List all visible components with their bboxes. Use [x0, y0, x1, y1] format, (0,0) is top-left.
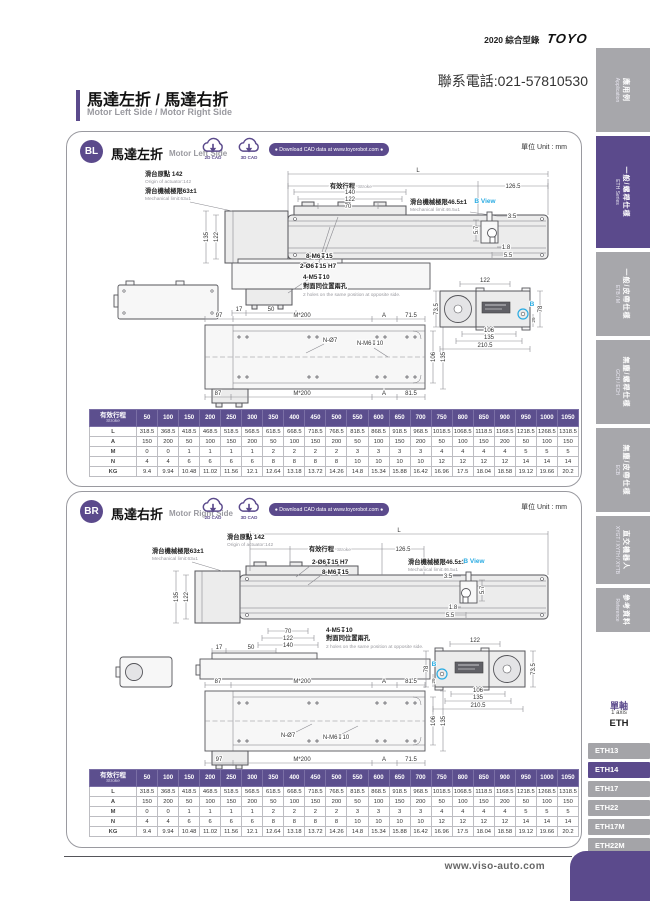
cad-download-banner[interactable]: ● Download CAD data at www.toyorobot.com…: [269, 503, 389, 516]
dimension-value-cell: 868.5: [368, 787, 389, 797]
dimension-value-cell: 6: [221, 457, 242, 467]
dimension-value-cell: 50: [263, 797, 284, 807]
sidebar-tab-etb-m[interactable]: 一般/皮帶仕樣ETB / M: [596, 252, 650, 336]
dimension-value-cell: 10: [389, 817, 410, 827]
dimension-value-cell: 150: [221, 437, 242, 447]
dimension-value-cell: 100: [536, 437, 557, 447]
dim-label: M*200: [293, 757, 311, 763]
sidebar-tab-xy-robot[interactable]: 直交機器人XYGT / XYTH / XYTB: [596, 516, 650, 584]
page-corner-decoration: [570, 851, 650, 901]
b-view-label: B View: [474, 198, 496, 205]
panel-motor-right: BR 馬達右折 Motor Right Side 2D CAD 3D CAD ●…: [66, 491, 582, 848]
dimension-value-cell: 8: [263, 457, 284, 467]
dimension-value-cell: 3: [410, 807, 431, 817]
dim-label: 210.5: [470, 703, 486, 709]
dim-label: 210.5: [477, 343, 493, 349]
dimension-value-cell: 4: [158, 457, 179, 467]
dimension-value-cell: 2: [305, 807, 326, 817]
tab-label-en: XYGT / XYTH / XYTB: [615, 526, 621, 574]
dim-label: 3.5: [508, 214, 517, 220]
dimension-value-cell: 18.58: [494, 467, 515, 477]
dim-label: 17: [236, 307, 243, 313]
dim-label: 106: [484, 328, 495, 334]
stroke-header-cell: 50: [137, 770, 158, 787]
dimension-value-cell: 518.5: [221, 427, 242, 437]
footer-divider: [64, 856, 572, 857]
dimension-value-cell: 9.94: [158, 827, 179, 837]
dimension-value-cell: 8: [263, 817, 284, 827]
dimension-value-cell: 318.5: [137, 787, 158, 797]
dimension-value-cell: 11.56: [221, 827, 242, 837]
dimension-value-cell: 10.48: [179, 827, 200, 837]
dimension-value-cell: 6: [200, 457, 221, 467]
unit-label: 單位 Unit : mm: [521, 502, 567, 512]
dim-label: 78: [424, 665, 430, 672]
dimension-value-cell: 1268.5: [536, 787, 557, 797]
title-accent-bar: [76, 90, 80, 121]
dimension-value-cell: 100: [284, 437, 305, 447]
dimension-value-cell: 13.72: [305, 467, 326, 477]
dim-label: 滑台機械極限63±1: [152, 546, 204, 555]
dimension-value-cell: 4: [494, 807, 515, 817]
dim-label: M*200: [293, 313, 311, 319]
tab-label-en: GCH / ECH: [615, 369, 621, 395]
dimension-value-cell: 2: [284, 447, 305, 457]
dimension-value-cell: 14: [515, 457, 536, 467]
sidebar-tab-reference[interactable]: 參考資料Reference: [596, 588, 650, 632]
row-label-cell: A: [90, 797, 137, 807]
dimension-value-cell: 14: [536, 817, 557, 827]
dimension-value-cell: 200: [242, 797, 263, 807]
dim-label: 5.5: [504, 253, 513, 259]
dimension-value-cell: 6: [221, 817, 242, 827]
dim-label: 70: [285, 629, 292, 635]
tab-label-zh: 無塵/螺桿仕樣: [622, 357, 632, 408]
dimension-value-cell: 5: [557, 807, 578, 817]
dimension-value-cell: 1: [221, 447, 242, 457]
stroke-header-cell: 800: [452, 410, 473, 427]
dim-label: M*200: [293, 679, 311, 685]
dimension-value-cell: 768.5: [326, 787, 347, 797]
dimension-value-cell: 9.94: [158, 467, 179, 477]
dimension-value-cell: 10: [410, 817, 431, 827]
dimension-value-cell: 17.5: [452, 467, 473, 477]
dimension-value-cell: 668.5: [284, 787, 305, 797]
dimension-value-cell: 4: [494, 447, 515, 457]
stroke-header-cell: 750: [431, 770, 452, 787]
dimension-value-cell: 14.26: [326, 827, 347, 837]
dimension-value-cell: 200: [326, 437, 347, 447]
dimension-value-cell: 14.8: [347, 467, 368, 477]
dimension-value-cell: 918.5: [389, 787, 410, 797]
dimension-value-cell: 200: [410, 797, 431, 807]
dim-label: 2 holes on the same position at opposite…: [303, 292, 400, 298]
tab-label-zh: 應用例: [622, 78, 632, 102]
dim-label: 81.5: [405, 679, 417, 685]
stroke-header-cell: 50: [137, 410, 158, 427]
cad-2d-label: 2D CAD: [205, 155, 222, 160]
dimension-value-cell: 150: [137, 437, 158, 447]
row-label-cell: A: [90, 437, 137, 447]
dimension-value-cell: 3: [347, 807, 368, 817]
dim-label: 2-Ø6↧15 H7: [300, 263, 337, 270]
dimension-value-cell: 150: [557, 437, 578, 447]
panel-motor-left: BL 馬達左折 Motor Left Side 2D CAD 3D CAD ● …: [66, 131, 582, 487]
dimension-value-cell: 1168.5: [494, 427, 515, 437]
dim-label: N-Ø7: [281, 733, 296, 739]
stroke-header-cell: 450: [305, 410, 326, 427]
dim-label: N-M6↧10: [357, 340, 384, 347]
dimension-value-cell: 4: [473, 447, 494, 457]
dimension-value-cell: 1118.5: [473, 787, 494, 797]
dimension-value-cell: 15.34: [368, 467, 389, 477]
stroke-dimension-table: 有效行程Stroke501001502002503003504004505005…: [89, 769, 579, 837]
dimension-value-cell: 100: [452, 437, 473, 447]
dimension-value-cell: 15.88: [389, 467, 410, 477]
dimension-value-cell: 6: [242, 457, 263, 467]
b-mark-label: B: [530, 301, 535, 308]
tab-label-en: ETB / M: [615, 285, 621, 303]
dim-label: Mechanical limit:46.5±1: [410, 207, 460, 213]
dimension-value-cell: 1318.5: [557, 427, 578, 437]
dimension-value-cell: 150: [305, 437, 326, 447]
dimension-value-cell: 718.5: [305, 427, 326, 437]
stroke-header-cell: 550: [347, 770, 368, 787]
sidebar-tab-gch-ech[interactable]: 無塵/螺桿仕樣GCH / ECH: [596, 340, 650, 424]
dimension-value-cell: 150: [557, 797, 578, 807]
dimension-value-cell: 14: [515, 817, 536, 827]
dimension-value-cell: 2: [284, 807, 305, 817]
dimension-value-cell: 8: [305, 817, 326, 827]
br-bottom-view: 87 M*200 A 81.5 N-Ø7 N-M6↧10 106 135 97: [205, 679, 447, 769]
dim-label: 106: [473, 688, 484, 694]
row-label-cell: L: [90, 427, 137, 437]
cad-3d-download[interactable]: 3D CAD: [233, 137, 265, 160]
dimension-value-cell: 4: [452, 447, 473, 457]
dim-label: 8-M6↧15: [322, 569, 349, 576]
cad-2d-download[interactable]: 2D CAD: [197, 497, 229, 520]
dimension-value-cell: 10: [347, 457, 368, 467]
dim-label: 122: [470, 638, 481, 644]
tab-label-zh: 一般/皮帶仕樣: [622, 269, 632, 320]
dim-label: 29: [531, 317, 537, 323]
stroke-header-cell: 950: [515, 410, 536, 427]
dim-label: A: [382, 391, 386, 397]
dim-label: 71.5: [405, 313, 417, 319]
page-subtitle: Motor Left Side / Motor Right Side: [87, 107, 232, 117]
dimension-value-cell: 768.5: [326, 427, 347, 437]
catalog-year-label: 2020 綜合型錄: [484, 35, 539, 45]
dimension-value-cell: 12: [494, 457, 515, 467]
dimension-value-cell: 10: [347, 817, 368, 827]
dimension-value-cell: 16.96: [431, 467, 452, 477]
dimension-value-cell: 11.56: [221, 467, 242, 477]
dim-label: 滑台原點 142: [145, 169, 183, 178]
dimension-value-cell: 13.72: [305, 827, 326, 837]
dim-label: 2 holes on the same position at opposite…: [326, 644, 423, 650]
dimension-value-cell: 1: [179, 447, 200, 457]
row-label-cell: M: [90, 447, 137, 457]
dimension-value-cell: 5: [557, 447, 578, 457]
tab-label-zh: 直交機器人: [622, 530, 632, 570]
stroke-header-cell: 150: [179, 770, 200, 787]
catalog-page: 2020 綜合型錄TOYO 聯系電話:021-57810530 馬達左折 / 馬…: [0, 0, 650, 901]
dimension-value-cell: 2: [326, 807, 347, 817]
dimension-value-cell: 200: [242, 437, 263, 447]
dimension-value-cell: 0: [137, 447, 158, 457]
dimension-value-cell: 1: [200, 807, 221, 817]
br-top-view: [195, 562, 548, 623]
dimension-value-cell: 568.5: [242, 427, 263, 437]
dimension-value-cell: 8: [305, 457, 326, 467]
dimension-value-cell: 818.5: [347, 427, 368, 437]
dimension-value-cell: 16.42: [410, 827, 431, 837]
row-label-cell: L: [90, 787, 137, 797]
dimension-value-cell: 1268.5: [536, 427, 557, 437]
dimension-value-cell: 18.04: [473, 827, 494, 837]
dim-label: L: [416, 168, 420, 174]
dim-label: 有效行程: [330, 181, 356, 190]
dimension-value-cell: 468.5: [200, 787, 221, 797]
dimension-value-cell: 8: [326, 457, 347, 467]
dimension-value-cell: 15.88: [389, 827, 410, 837]
dimension-value-cell: 518.5: [221, 787, 242, 797]
sidebar-tab-eth-series[interactable]: 一般/螺桿仕樣ETH Series: [596, 136, 650, 248]
dimension-value-cell: 1: [242, 807, 263, 817]
dimension-value-cell: 14: [557, 817, 578, 827]
dimension-value-cell: 19.66: [536, 467, 557, 477]
dimension-value-cell: 16.96: [431, 827, 452, 837]
dimension-value-cell: 200: [410, 437, 431, 447]
dim-label: A: [382, 679, 386, 685]
dimension-table: 有效行程Stroke501001502002503003504004505005…: [89, 769, 579, 837]
dim-label: 97: [216, 313, 223, 319]
dimension-value-cell: 50: [515, 797, 536, 807]
stroke-header-corner: 有效行程Stroke: [90, 770, 137, 787]
cad-3d-download[interactable]: 3D CAD: [233, 497, 265, 520]
dim-label: 71.5: [405, 757, 417, 763]
dimension-value-cell: 1318.5: [557, 787, 578, 797]
dimension-value-cell: 19.66: [536, 827, 557, 837]
dim-label: 122: [214, 231, 220, 242]
dim-label: 對面同位置兩孔: [326, 633, 371, 642]
dimension-value-cell: 20.2: [557, 827, 578, 837]
dimension-value-cell: 18.04: [473, 467, 494, 477]
dimension-value-cell: 0: [158, 807, 179, 817]
dimension-value-cell: 150: [389, 797, 410, 807]
dimension-value-cell: 968.5: [410, 787, 431, 797]
dimension-value-cell: 12: [431, 457, 452, 467]
dimension-value-cell: 100: [200, 437, 221, 447]
dim-label: 滑台機械極限46.5±1: [408, 557, 465, 566]
dim-label: 135: [484, 335, 495, 341]
dim-label: 135: [441, 351, 447, 362]
stroke-header-cell: 900: [494, 770, 515, 787]
dimension-value-cell: 150: [137, 797, 158, 807]
dim-label: Mechanical limit:63±1: [152, 556, 198, 562]
table-row: N44666688881010101012121212141414: [90, 457, 579, 467]
dim-label: 122: [184, 591, 190, 602]
stroke-header-cell: 250: [221, 770, 242, 787]
dimension-value-cell: 868.5: [368, 427, 389, 437]
tab-label-en: ETH Series: [615, 179, 621, 205]
dimension-value-cell: 3: [368, 447, 389, 457]
cloud-download-icon: [199, 497, 227, 517]
dimension-value-cell: 50: [347, 797, 368, 807]
sidebar-tab-application[interactable]: 應用例Application: [596, 48, 650, 132]
stroke-header-cell: 850: [473, 770, 494, 787]
cad-3d-label: 3D CAD: [241, 155, 258, 160]
dimension-value-cell: 9.4: [137, 827, 158, 837]
stroke-header-cell: 700: [410, 770, 431, 787]
dimension-value-cell: 3: [347, 447, 368, 457]
dimension-value-cell: 15.34: [368, 827, 389, 837]
cad-download-banner[interactable]: ● Download CAD data at www.toyorobot.com…: [269, 143, 389, 156]
dimension-value-cell: 11.02: [200, 467, 221, 477]
stroke-header-cell: 400: [284, 410, 305, 427]
dimension-value-cell: 12.1: [242, 827, 263, 837]
dimension-value-cell: 16.42: [410, 467, 431, 477]
dim-label: 1.8: [502, 245, 511, 251]
dim-label: 1.8: [449, 605, 458, 611]
dimension-value-cell: 4: [452, 807, 473, 817]
dim-label: 140: [283, 643, 294, 649]
series-item-eth14[interactable]: ETH14: [588, 762, 650, 778]
series-group-code: ETH: [588, 718, 650, 729]
dim-label: N-Ø7: [323, 338, 338, 344]
series-item-eth13[interactable]: ETH13: [588, 743, 650, 759]
table-row: KG9.49.9410.4811.0211.5612.112.6413.1813…: [90, 827, 579, 837]
table-row: M001111222233334444555: [90, 447, 579, 457]
dimension-value-cell: 10: [389, 457, 410, 467]
stroke-header-cell: 850: [473, 410, 494, 427]
dimension-value-cell: 20.2: [557, 467, 578, 477]
dimension-value-cell: 4: [431, 447, 452, 457]
dimension-value-cell: 0: [137, 807, 158, 817]
b-mark-label: B: [432, 661, 437, 668]
bl-title-zh: 馬達左折: [111, 144, 163, 163]
br-badge: BR: [80, 500, 103, 523]
dimension-value-cell: 6: [242, 817, 263, 827]
dimension-value-cell: 1: [200, 447, 221, 457]
br-side-view: 70 122 140 4-M5↧10 對面同位置兩孔 2 holes on th…: [116, 627, 430, 687]
dimension-value-cell: 150: [305, 797, 326, 807]
dim-label: 122: [345, 197, 356, 203]
dimension-value-cell: 200: [158, 797, 179, 807]
cad-2d-download[interactable]: 2D CAD: [197, 137, 229, 160]
stroke-header-cell: 1050: [557, 770, 578, 787]
dimension-value-cell: 1068.5: [452, 427, 473, 437]
dimension-value-cell: 50: [179, 437, 200, 447]
dim-label: 2-Ø6↧15 H7: [312, 559, 349, 566]
dimension-value-cell: 150: [473, 797, 494, 807]
dimension-value-cell: 100: [284, 797, 305, 807]
dimension-value-cell: 1018.5: [431, 427, 452, 437]
dimension-value-cell: 50: [263, 437, 284, 447]
dimension-value-cell: 1068.5: [452, 787, 473, 797]
dim-label: 87: [215, 391, 222, 397]
dimension-value-cell: 368.5: [158, 427, 179, 437]
series-item-eth17[interactable]: ETH17: [588, 781, 650, 797]
bl-badge: BL: [80, 140, 103, 163]
dim-label: 135: [473, 695, 484, 701]
dimension-value-cell: 200: [326, 797, 347, 807]
cloud-download-icon: [235, 497, 263, 517]
dimension-value-cell: 4: [137, 457, 158, 467]
row-label-cell: N: [90, 817, 137, 827]
dim-label: 106: [431, 715, 437, 726]
dimension-value-cell: 150: [221, 797, 242, 807]
dimension-value-cell: 1: [242, 447, 263, 457]
bl-end-view: 122 B 73.5 78 29 106 135 210.5: [433, 278, 544, 352]
table-row: A150200501001502005010015020050100150200…: [90, 797, 579, 807]
dimension-value-cell: 368.5: [158, 787, 179, 797]
dim-label: 122: [283, 636, 294, 642]
dimension-value-cell: 200: [158, 437, 179, 447]
tab-label-zh: 一般/螺桿仕樣: [622, 167, 632, 218]
dimension-value-cell: 2: [326, 447, 347, 457]
dimension-value-cell: 5: [536, 447, 557, 457]
tab-label-en: Reference: [615, 598, 621, 621]
dimension-value-cell: 418.5: [179, 427, 200, 437]
stroke-header-cell: 900: [494, 410, 515, 427]
stroke-header-cell: 550: [347, 410, 368, 427]
dimension-value-cell: 50: [347, 437, 368, 447]
cad-2d-label: 2D CAD: [205, 515, 222, 520]
dimension-value-cell: 3: [410, 447, 431, 457]
bl-bottom-view: 97 M*200 A 71.5 N-Ø7 N-M6↧10 106 135 87: [205, 313, 447, 407]
dimension-value-cell: 718.5: [305, 787, 326, 797]
dim-label: 70: [345, 204, 352, 210]
dim-label: L: [397, 528, 401, 534]
stroke-header-cell: 350: [263, 770, 284, 787]
dimension-value-cell: 0: [158, 447, 179, 457]
dimension-value-cell: 5: [536, 807, 557, 817]
dimension-value-cell: 4: [158, 817, 179, 827]
dimension-value-cell: 150: [389, 437, 410, 447]
dimension-value-cell: 5: [515, 447, 536, 457]
sidebar-tab-ecb[interactable]: 無塵/皮帶仕樣ECB: [596, 428, 650, 512]
dimension-value-cell: 1118.5: [473, 427, 494, 437]
dimension-value-cell: 50: [431, 797, 452, 807]
dim-label: 81.5: [405, 391, 417, 397]
dim-label: Origin of actuator:142: [145, 179, 191, 185]
dim-label: M*200: [293, 391, 311, 397]
dimension-value-cell: 12: [452, 457, 473, 467]
dimension-value-cell: 19.12: [515, 467, 536, 477]
dimension-value-cell: 12.64: [263, 827, 284, 837]
dim-label: 17: [216, 645, 223, 651]
dim-label: 122: [480, 278, 491, 284]
series-item-eth22[interactable]: ETH22: [588, 800, 650, 816]
dimension-value-cell: 10: [368, 817, 389, 827]
dim-label: A: [382, 757, 386, 763]
dim-label: 3.5: [444, 574, 453, 580]
stroke-header-cell: 750: [431, 410, 452, 427]
dimension-value-cell: 9.4: [137, 467, 158, 477]
cloud-download-icon: [199, 137, 227, 157]
dimension-value-cell: 12.1: [242, 467, 263, 477]
dimension-value-cell: 1: [179, 807, 200, 817]
cad-3d-label: 3D CAD: [241, 515, 258, 520]
dim-label: 滑台原點 142: [227, 532, 265, 541]
dimension-value-cell: 618.5: [263, 427, 284, 437]
dim-label: 140: [345, 190, 356, 196]
series-item-eth17m[interactable]: ETH17M: [588, 819, 650, 835]
cloud-download-icon: [235, 137, 263, 157]
dim-label: 135: [174, 591, 180, 602]
dimension-value-cell: 3: [389, 447, 410, 457]
